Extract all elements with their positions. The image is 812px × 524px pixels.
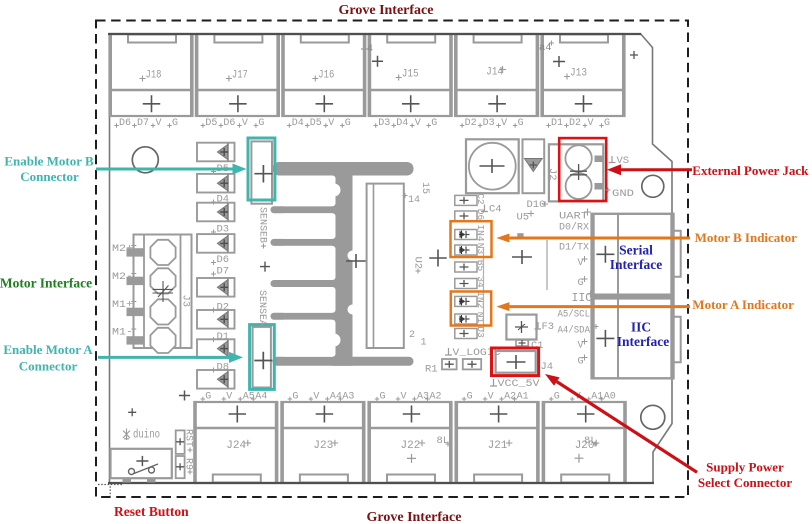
svg-text:D2: D2: [569, 118, 581, 129]
svg-text:A0: A0: [604, 392, 616, 403]
svg-text:Grove Interface: Grove Interface: [339, 3, 434, 18]
svg-text:Interface: Interface: [617, 334, 669, 349]
svg-text:GND: GND: [612, 188, 634, 200]
svg-text:D3: D3: [378, 118, 390, 129]
svg-text:A4/SDA: A4/SDA: [558, 324, 591, 336]
svg-text:G: G: [172, 118, 178, 129]
svg-text:B5: B5: [475, 260, 486, 272]
svg-text:M1+: M1+: [112, 299, 133, 311]
svg-text:R9: R9: [183, 458, 194, 470]
svg-text:J23: J23: [313, 440, 333, 452]
svg-text:D6: D6: [119, 118, 131, 129]
svg-text:Supply Power: Supply Power: [706, 460, 784, 475]
svg-text:M2+: M2+: [112, 243, 133, 255]
svg-text:G: G: [518, 118, 524, 129]
svg-text:IIC: IIC: [631, 320, 651, 335]
svg-text:Motor B Indicator: Motor B Indicator: [695, 230, 798, 245]
svg-text:V: V: [415, 118, 421, 129]
svg-text:D2: D2: [465, 118, 477, 129]
svg-text:Connector: Connector: [19, 359, 78, 374]
svg-text:G: G: [205, 392, 211, 403]
svg-text:Select Connector: Select Connector: [698, 475, 792, 490]
svg-text:A1: A1: [517, 392, 529, 403]
svg-text:G: G: [380, 392, 386, 403]
svg-text:R1: R1: [425, 364, 438, 376]
svg-text:D6: D6: [475, 209, 486, 221]
svg-text:J21: J21: [488, 440, 508, 452]
svg-text:D7: D7: [137, 118, 149, 129]
svg-text:A2: A2: [430, 392, 442, 403]
svg-text:J18: J18: [146, 70, 162, 82]
svg-text:D4: D4: [396, 118, 408, 129]
svg-text:V: V: [313, 392, 319, 403]
svg-text:Serial: Serial: [619, 243, 653, 258]
svg-text:a4: a4: [539, 42, 552, 54]
svg-text:V: V: [501, 118, 507, 129]
svg-text:V: V: [588, 118, 594, 129]
svg-text:V: V: [401, 392, 407, 403]
svg-text:Enable Motor B: Enable Motor B: [4, 154, 94, 169]
svg-text:G: G: [431, 118, 437, 129]
svg-text:U5: U5: [517, 212, 530, 224]
svg-text:External Power Jack: External Power Jack: [692, 163, 809, 178]
svg-text:V: V: [242, 118, 248, 129]
svg-text:V: V: [328, 118, 334, 129]
svg-text:F3: F3: [542, 321, 555, 333]
svg-text:J24: J24: [226, 440, 246, 452]
svg-text:14: 14: [408, 195, 420, 206]
svg-text:C4: C4: [489, 204, 502, 216]
svg-text:Connector: Connector: [20, 169, 79, 184]
svg-text:Motor Interface: Motor Interface: [0, 276, 92, 291]
svg-text:D6: D6: [223, 118, 235, 129]
svg-text:Reset Button: Reset Button: [114, 504, 189, 519]
svg-text:J16: J16: [318, 70, 334, 82]
svg-text:G: G: [604, 118, 610, 129]
svg-text:RST: RST: [183, 429, 194, 447]
svg-text:G: G: [578, 278, 584, 289]
svg-text:U2: U2: [412, 257, 424, 270]
svg-text:D5: D5: [310, 118, 322, 129]
svg-text:A4: A4: [255, 392, 267, 403]
svg-text:8L: 8L: [437, 435, 450, 447]
svg-text:IN4: IN4: [475, 224, 486, 241]
svg-text:J22: J22: [401, 440, 421, 452]
svg-text:1: 1: [421, 338, 427, 349]
svg-text:N3: N3: [475, 243, 486, 255]
svg-text:V: V: [226, 392, 232, 403]
svg-text:D7: D7: [217, 266, 230, 278]
svg-text:A5/SCL: A5/SCL: [558, 309, 591, 321]
svg-text:Interface: Interface: [610, 257, 662, 272]
svg-text:2: 2: [409, 330, 415, 341]
svg-text:D4: D4: [217, 194, 230, 206]
svg-text:G: G: [345, 118, 351, 129]
svg-text:J4: J4: [541, 361, 554, 373]
svg-text:duino: duino: [133, 429, 160, 442]
svg-text:UART: UART: [559, 211, 588, 223]
svg-text:V: V: [488, 392, 494, 403]
svg-text:J14: J14: [486, 67, 503, 79]
svg-text:Motor A Indicator: Motor A Indicator: [692, 297, 794, 312]
svg-text:D3: D3: [475, 326, 486, 338]
svg-text:Enable Motor A: Enable Motor A: [3, 342, 93, 357]
svg-text:SENSEB: SENSEB: [257, 207, 268, 243]
svg-text:A3: A3: [342, 392, 354, 403]
svg-text:C2: C2: [475, 193, 486, 205]
svg-text:M2-: M2-: [112, 271, 133, 283]
svg-text:D6: D6: [217, 254, 230, 266]
svg-text:VS: VS: [617, 155, 630, 167]
svg-text:G: G: [578, 357, 584, 368]
svg-text:J3: J3: [180, 295, 192, 308]
svg-text:34: 34: [475, 276, 486, 288]
svg-text:IN2: IN2: [475, 291, 486, 308]
svg-text:J2: J2: [546, 168, 558, 181]
svg-text:D2: D2: [217, 302, 230, 314]
svg-text:D5: D5: [205, 118, 217, 129]
svg-text:15: 15: [419, 182, 430, 194]
svg-text:D1: D1: [217, 331, 230, 343]
svg-text:J15: J15: [402, 69, 419, 81]
svg-text:G: G: [258, 118, 264, 129]
svg-text:V: V: [578, 258, 584, 269]
svg-text:D1/TX: D1/TX: [559, 242, 589, 254]
svg-text:G: G: [292, 392, 298, 403]
svg-text:VCC_5V: VCC_5V: [498, 378, 541, 390]
svg-text:V: V: [156, 118, 162, 129]
svg-text:Grove Interface: Grove Interface: [367, 510, 462, 524]
svg-text:V: V: [578, 341, 584, 352]
svg-text:M1-: M1-: [112, 327, 133, 339]
svg-text:N1: N1: [475, 312, 486, 324]
svg-text:J13: J13: [570, 68, 587, 80]
svg-text:D0/RX: D0/RX: [559, 222, 589, 234]
svg-text:SENSEA: SENSEA: [256, 290, 267, 326]
svg-text:D8: D8: [217, 362, 230, 374]
svg-text:D10: D10: [527, 199, 546, 211]
svg-text:J17: J17: [232, 70, 248, 82]
svg-text:D3: D3: [483, 118, 495, 129]
svg-text:G: G: [554, 392, 560, 403]
svg-text:G: G: [467, 392, 473, 403]
svg-text:D4: D4: [292, 118, 304, 129]
svg-text:D1: D1: [551, 118, 563, 129]
